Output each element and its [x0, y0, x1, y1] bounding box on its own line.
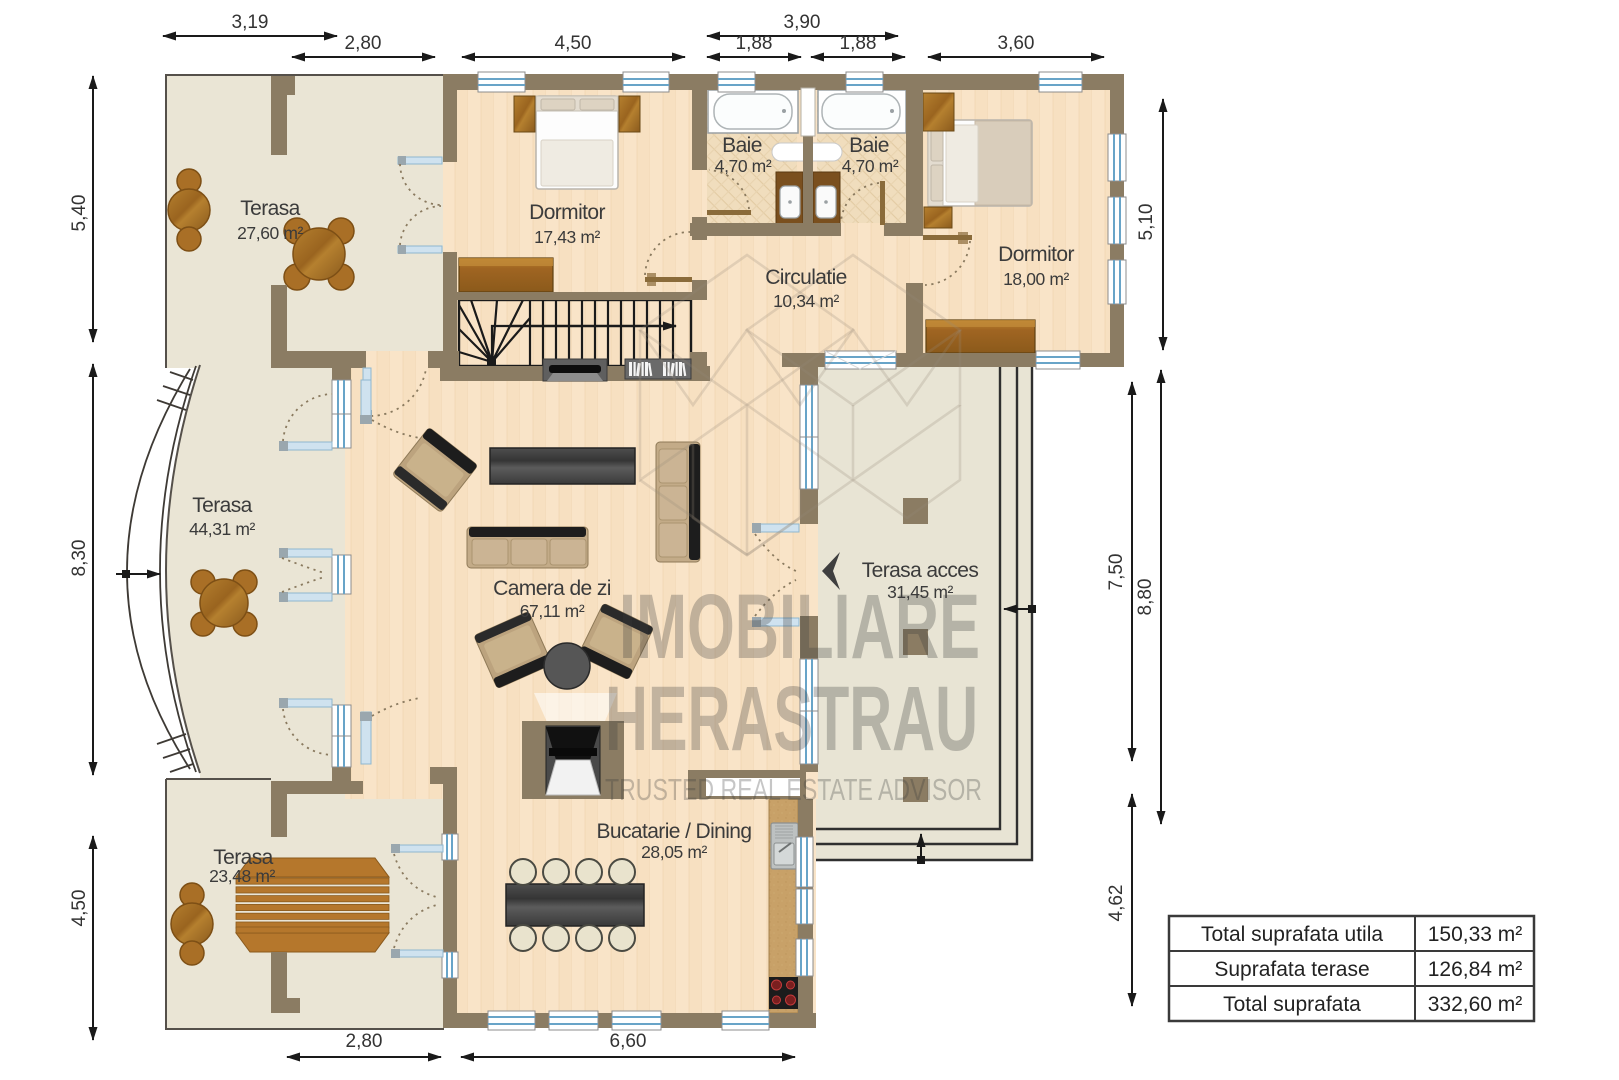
svg-text:44,31 m²: 44,31 m²	[189, 519, 255, 539]
svg-text:8,30: 8,30	[69, 540, 90, 577]
svg-text:Camera de zi: Camera de zi	[493, 577, 611, 600]
svg-text:28,05 m²: 28,05 m²	[641, 842, 707, 862]
svg-text:150,33 m²: 150,33 m²	[1428, 923, 1523, 946]
svg-text:Suprafata terase: Suprafata terase	[1214, 958, 1369, 981]
svg-text:67,11 m²: 67,11 m²	[520, 601, 585, 621]
svg-text:Bucatarie / Dining: Bucatarie / Dining	[597, 820, 752, 843]
svg-text:3,19: 3,19	[232, 12, 269, 33]
svg-text:3,60: 3,60	[998, 33, 1035, 54]
svg-text:1,88: 1,88	[840, 33, 877, 54]
svg-text:Dormitor: Dormitor	[998, 243, 1074, 266]
svg-text:17,43 m²: 17,43 m²	[534, 227, 600, 247]
svg-text:4,62: 4,62	[1106, 885, 1127, 922]
svg-text:TRUSTED REAL ESTATE ADVISOR: TRUSTED REAL ESTATE ADVISOR	[605, 772, 982, 807]
svg-text:18,00 m²: 18,00 m²	[1003, 269, 1069, 289]
svg-text:2,80: 2,80	[345, 33, 382, 54]
svg-text:Circulatie: Circulatie	[765, 266, 847, 289]
svg-text:4,50: 4,50	[555, 33, 592, 54]
svg-text:4,70 m²: 4,70 m²	[842, 156, 899, 176]
svg-text:3,90: 3,90	[784, 12, 821, 33]
svg-text:Dormitor: Dormitor	[529, 201, 605, 224]
svg-text:5,40: 5,40	[69, 195, 90, 232]
svg-text:2,80: 2,80	[346, 1031, 383, 1052]
svg-text:4,50: 4,50	[69, 890, 90, 927]
svg-text:Terasa acces: Terasa acces	[862, 559, 979, 582]
svg-text:31,45 m²: 31,45 m²	[887, 582, 953, 602]
svg-text:Total suprafata: Total suprafata	[1223, 993, 1361, 1016]
svg-text:8,80: 8,80	[1135, 579, 1156, 616]
svg-text:23,48 m²: 23,48 m²	[209, 866, 275, 886]
svg-text:Total suprafata utila: Total suprafata utila	[1201, 923, 1383, 946]
svg-text:HERASTRAU: HERASTRAU	[605, 668, 978, 770]
svg-text:27,60 m²: 27,60 m²	[237, 223, 303, 243]
svg-text:4,70 m²: 4,70 m²	[715, 156, 772, 176]
svg-text:332,60 m²: 332,60 m²	[1428, 993, 1523, 1016]
svg-text:10,34 m²: 10,34 m²	[773, 291, 839, 311]
svg-text:Terasa: Terasa	[240, 197, 300, 220]
svg-text:7,50: 7,50	[1106, 554, 1127, 591]
svg-text:Baie: Baie	[722, 134, 762, 157]
svg-text:5,10: 5,10	[1136, 204, 1157, 241]
svg-text:6,60: 6,60	[610, 1031, 647, 1052]
svg-text:1,88: 1,88	[736, 33, 773, 54]
svg-text:Terasa: Terasa	[192, 494, 252, 517]
svg-text:126,84 m²: 126,84 m²	[1428, 958, 1523, 981]
svg-text:Baie: Baie	[849, 134, 889, 157]
